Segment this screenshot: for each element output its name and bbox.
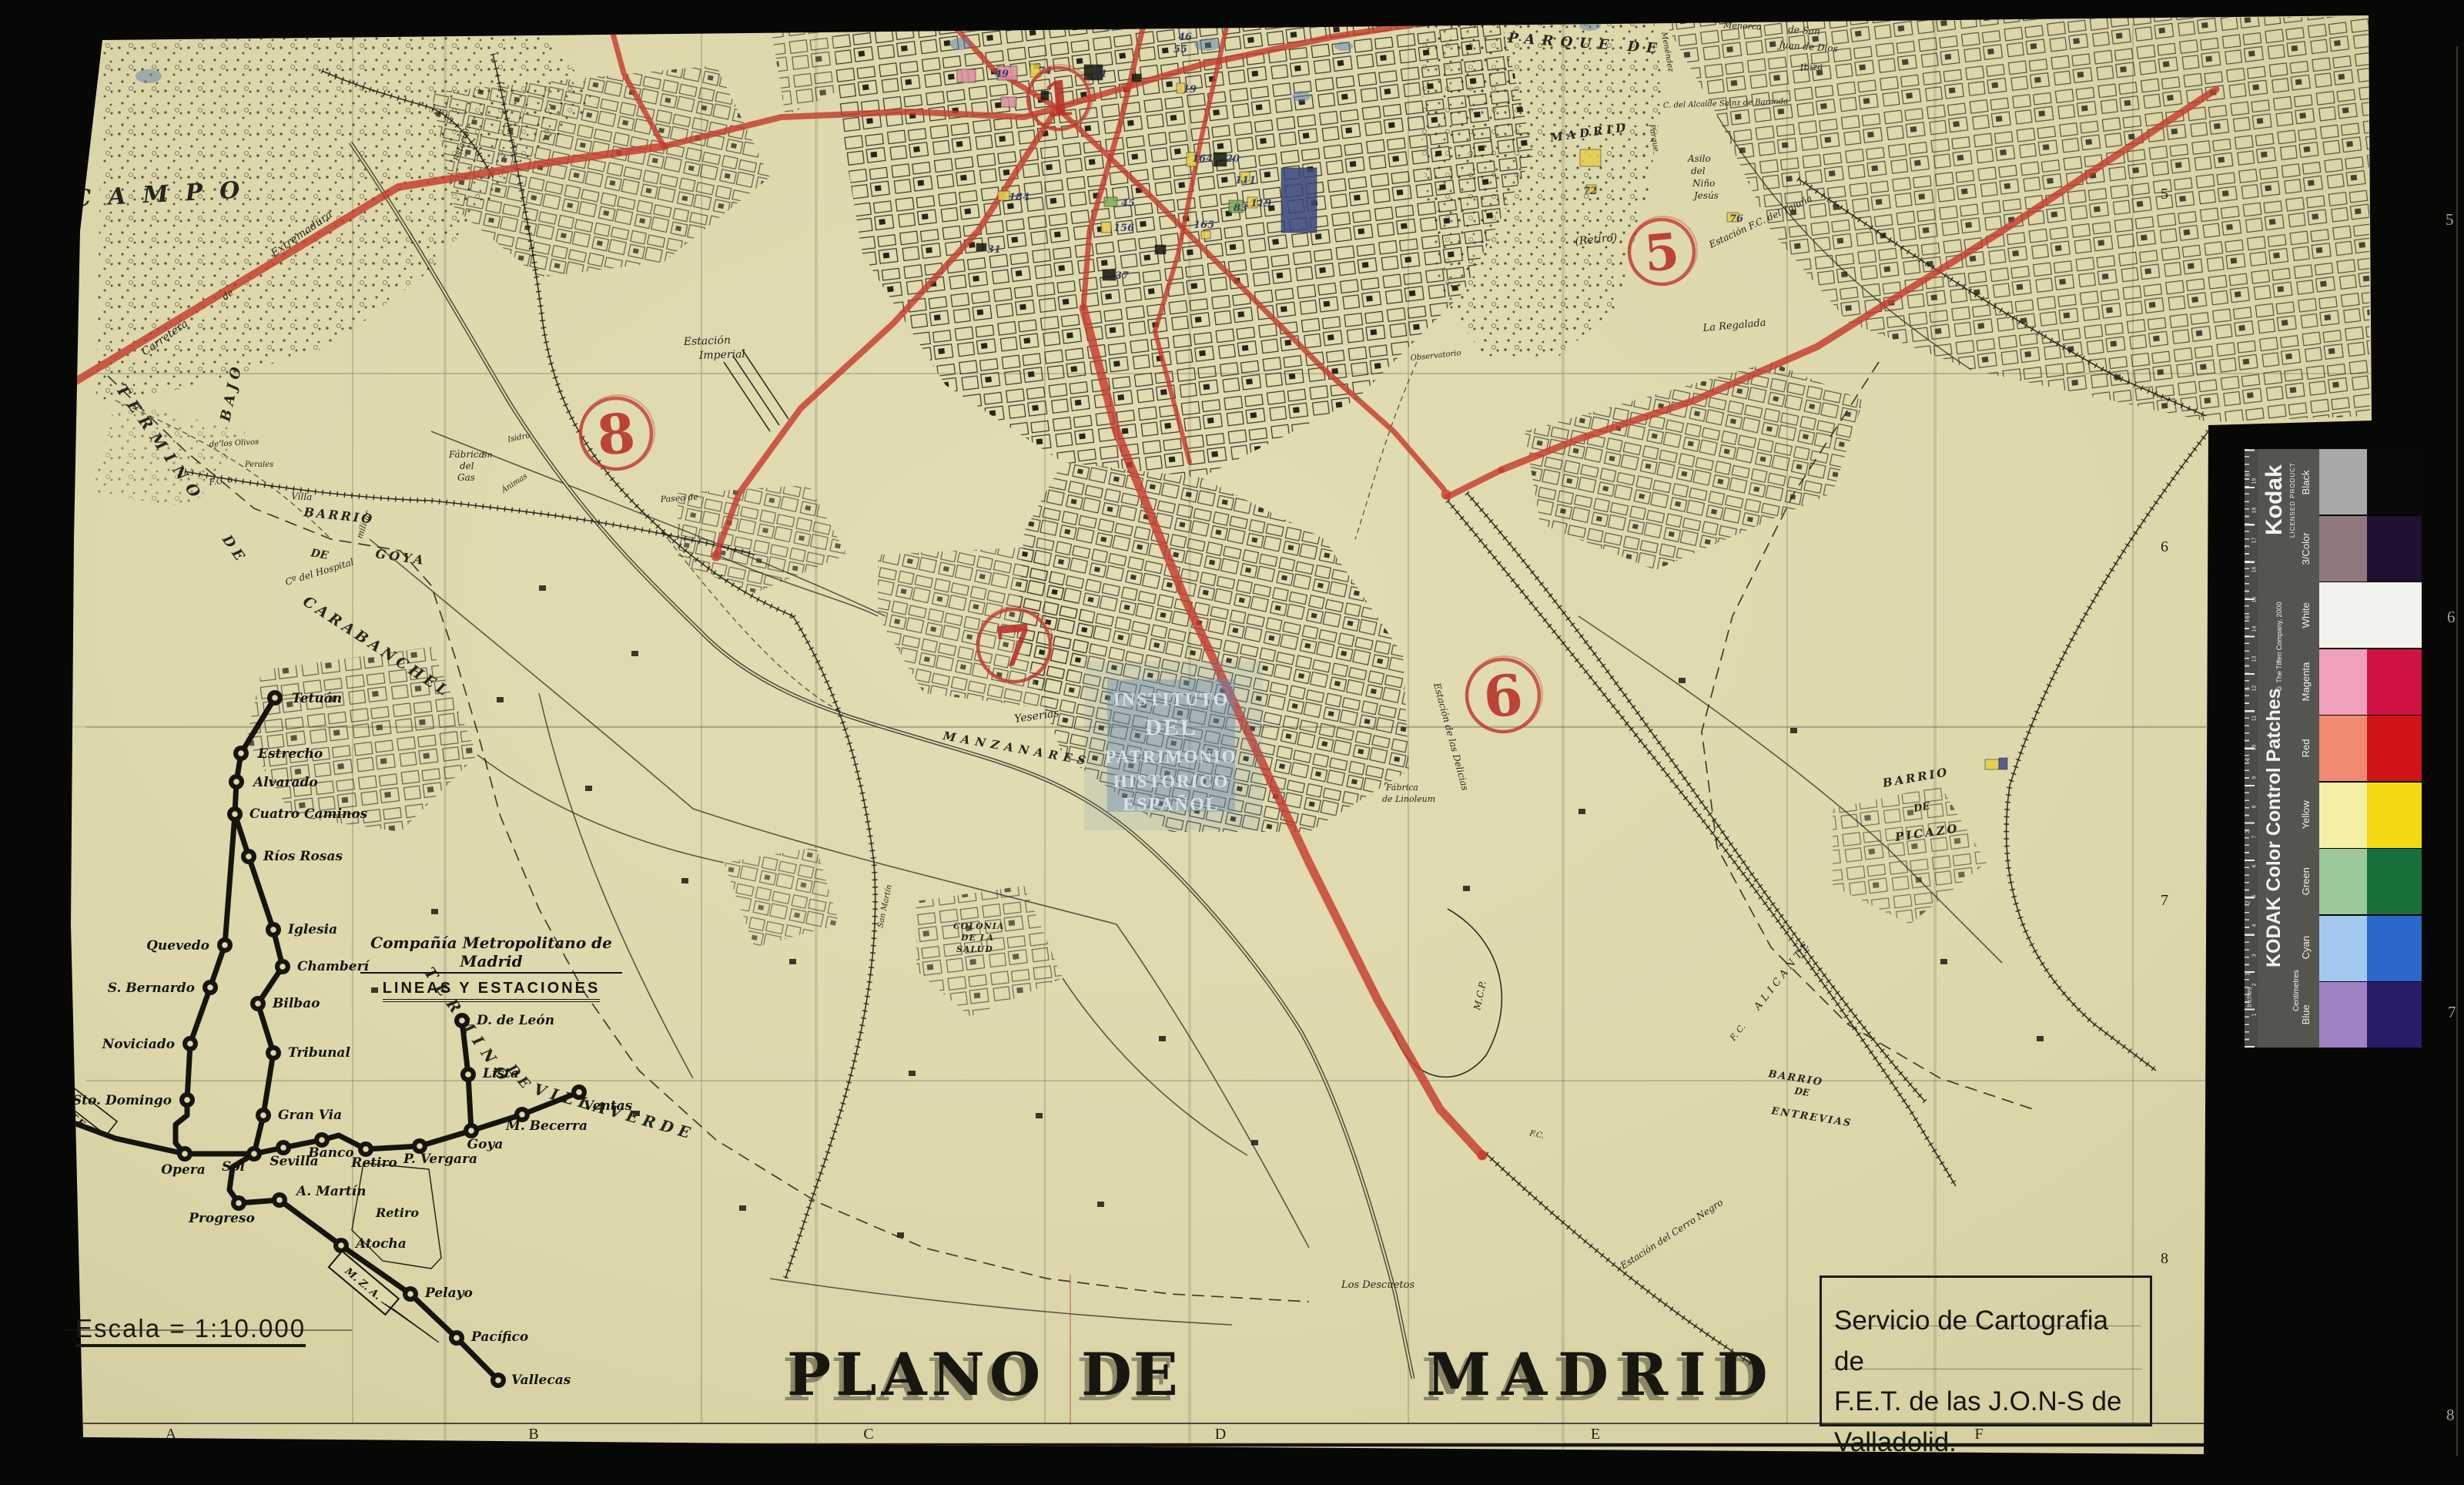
- kodak-row-black: [2319, 449, 2422, 515]
- map-label: Fábrica: [1385, 783, 1418, 793]
- metro-station-label: Pelayo: [424, 1286, 473, 1301]
- red-road-end: [1441, 490, 1451, 500]
- metro-station-hole: [233, 779, 239, 785]
- edge-row-number: 7: [2448, 1003, 2456, 1021]
- metro-station-label: Progreso: [188, 1211, 255, 1226]
- small-building: [539, 585, 546, 591]
- edge-row-number: 8: [2446, 1406, 2455, 1424]
- metro-station-hole: [319, 1137, 325, 1143]
- metro-station-label: Noviciado: [102, 1037, 175, 1052]
- ruler-cm-number: 16: [2252, 565, 2258, 575]
- red-circle-number: 5: [1642, 223, 1682, 284]
- ruler-cm-number: 14: [2252, 625, 2258, 634]
- kodak-patch-light: [2319, 849, 2367, 914]
- metro-station-hole: [270, 927, 276, 933]
- small-building: [631, 651, 638, 656]
- map-label: del: [460, 461, 474, 471]
- building-number: 55: [1173, 44, 1187, 55]
- metro-station-label: Lista: [482, 1066, 519, 1081]
- small-building: [1679, 678, 1686, 683]
- map-label: Jesús: [1692, 190, 1719, 201]
- grid-row-number: 7: [2161, 892, 2168, 909]
- metro-station-label: Norte: [26, 1130, 69, 1145]
- highlighted-building: [1281, 168, 1317, 233]
- map-label: Menorca: [1722, 20, 1762, 32]
- highlighted-building: [1155, 245, 1166, 254]
- ruler-cm-number: 19: [2252, 476, 2258, 485]
- metro-station-hole: [270, 1050, 276, 1056]
- metro-station-label: Alvarado: [252, 775, 318, 790]
- metro-station-label: Ventas: [584, 1098, 633, 1114]
- metro-station-hole: [454, 1335, 460, 1341]
- map-label: SALUD: [956, 944, 993, 954]
- map-label: Imperial: [698, 348, 746, 362]
- ruler-inch-number: 2: [2245, 898, 2251, 907]
- ruler-inch-number: 7: [2245, 541, 2251, 551]
- kodak-patch-light: [2319, 783, 2367, 848]
- kodak-patch-dark: [2367, 716, 2422, 781]
- kodak-patch-label: Magenta: [2300, 649, 2318, 715]
- building-number: 111: [1235, 175, 1256, 186]
- cartography-attribution-box: Servicio de Cartografia de F.E.T. de las…: [1820, 1275, 2152, 1426]
- metro-station-label: Sol: [222, 1159, 246, 1175]
- building-number: 156: [1113, 223, 1134, 234]
- metro-station-hole: [338, 1242, 344, 1249]
- kodak-patch-dark: [2367, 783, 2422, 848]
- kodak-row-cyan: [2319, 916, 2422, 981]
- red-circle-number: 7: [992, 612, 1036, 681]
- building-number: 49: [995, 69, 1009, 80]
- red-road-end: [1478, 1151, 1488, 1161]
- map-title-word-de: DE: [1081, 1340, 1180, 1409]
- edge-row-number: 6: [2447, 608, 2456, 626]
- grid-column-letter: A: [166, 1426, 177, 1443]
- kodak-patch-dark: [2367, 849, 2422, 914]
- highlighted-building: [957, 69, 976, 82]
- map-label: Fábrica: [448, 449, 484, 460]
- metro-station-hole: [468, 1128, 474, 1134]
- metro-station-hole: [251, 1151, 257, 1157]
- small-building: [1940, 959, 1947, 964]
- highlighted-building: [1101, 222, 1111, 233]
- metro-station-hole: [65, 1118, 71, 1124]
- ruler-cm-number: 13: [2252, 654, 2258, 663]
- ruler-inch-number: 4: [2245, 756, 2251, 765]
- small-building: [1036, 1113, 1043, 1118]
- map-title-word-madrid: MADRID: [1426, 1340, 1779, 1409]
- metro-station-hole: [363, 1146, 369, 1152]
- highlighted-building: [1214, 153, 1227, 166]
- metro-station-label: Iglesia: [287, 922, 337, 937]
- ruler-cm-number: 6: [2252, 862, 2258, 871]
- metro-station-hole: [238, 750, 244, 756]
- stamp-line: INSTITUTO: [1113, 690, 1230, 710]
- kodak-patch-label: White: [2300, 582, 2318, 649]
- map-label: COLONIA: [953, 921, 1004, 931]
- metro-company-label: Compañía Metropolitano de Madrid: [360, 934, 622, 974]
- kodak-patch-light: [2319, 982, 2367, 1048]
- metro-station-label: Retiro: [350, 1155, 397, 1171]
- metro-station-label: Quevedo: [146, 938, 209, 954]
- blue-wash: [949, 38, 971, 50]
- kodak-patch-light: [2319, 916, 2367, 981]
- highlighted-building: [1201, 231, 1210, 239]
- small-building: [585, 786, 592, 791]
- grid-column-letter: B: [528, 1426, 538, 1443]
- metro-station-label: Pacífico: [470, 1329, 528, 1345]
- edge-row-number: 5: [2446, 210, 2454, 229]
- map-label: Ibiza: [1799, 61, 1823, 73]
- metro-station-hole: [232, 811, 238, 817]
- ruler-cm-number: 10: [2252, 743, 2258, 753]
- map-label: Los Descuetos: [1341, 1279, 1414, 1291]
- kodak-row-white: [2319, 582, 2422, 648]
- building-number: 37: [1115, 270, 1129, 282]
- highlighted-building: [1999, 758, 2007, 769]
- blue-wash: [1100, 22, 1117, 31]
- blue-wash: [1334, 42, 1353, 51]
- map-label: de Linoleum: [1382, 794, 1435, 804]
- kodak-patch-label: 3/Color: [2300, 515, 2318, 582]
- metro-station-hole: [465, 1071, 471, 1078]
- metro-station-label: D. de León: [476, 1013, 554, 1028]
- red-road-end: [711, 551, 721, 561]
- building-number: 19: [1183, 84, 1197, 96]
- metro-station-hole: [182, 1151, 188, 1157]
- map-label: de San: [1788, 24, 1821, 37]
- grid-column-letter: C: [863, 1426, 873, 1443]
- kodak-patch-light: [2319, 716, 2367, 781]
- kodak-patch-label: Yellow: [2300, 782, 2318, 848]
- grid-column-letter: E: [1591, 1426, 1600, 1443]
- metro-station-label: Tetuán: [292, 691, 342, 706]
- kodak-inches-label: Inches: [2245, 954, 2253, 1041]
- metro-station-hole: [495, 1377, 501, 1383]
- ruler-cm-number: 5: [2252, 891, 2258, 900]
- metro-station-hole: [276, 1197, 283, 1203]
- metro-station-label: Gran Via: [278, 1108, 342, 1123]
- blue-wash: [136, 69, 162, 83]
- kodak-patch-dark: [2367, 649, 2422, 715]
- kodak-row-blue: [2319, 982, 2422, 1048]
- metro-legend-heading: Compañía Metropolitano de Madrid LINEAS …: [360, 934, 622, 1002]
- building-number: 164: [1192, 153, 1213, 165]
- metro-station-hole: [576, 1089, 582, 1095]
- metro-station-hole: [459, 1017, 465, 1024]
- metro-station-label: Atocha: [354, 1236, 407, 1252]
- kodak-row-magenta: [2319, 649, 2422, 715]
- metro-station-label: Goya: [467, 1137, 504, 1152]
- metro-station-hole: [407, 1291, 413, 1297]
- scale-text: Escala = 1:10.000: [75, 1314, 306, 1347]
- kodak-patch-dark: [2367, 916, 2422, 981]
- kodak-patch-label: Cyan: [2300, 914, 2318, 981]
- small-building: [739, 1205, 746, 1211]
- kodak-patch-label: Green: [2300, 848, 2318, 914]
- building-number: 184: [1009, 192, 1029, 203]
- ruler-cm-number: 9: [2252, 773, 2258, 782]
- archive-stamp: INSTITUTO DEL PATRIMONIO HISTORICO ESPAÑ…: [1084, 661, 1263, 830]
- ruler-inch-number: 3: [2245, 826, 2251, 836]
- metro-station-hole: [417, 1143, 423, 1149]
- metro-station-hole: [519, 1111, 525, 1118]
- metro-station-label: S. Bernardo: [108, 981, 195, 996]
- metro-station-hole: [272, 695, 278, 701]
- grid-row-number: 5: [2161, 186, 2168, 203]
- metro-station-label: Ríos Rosas: [263, 849, 343, 864]
- map-label: Perales: [244, 461, 273, 469]
- grid-column-letter: D: [1215, 1426, 1226, 1443]
- highlighted-building: [1580, 149, 1601, 166]
- highlighted-building: [998, 191, 1009, 200]
- building-number: 76: [1729, 213, 1743, 225]
- map-label: del: [1691, 166, 1706, 176]
- small-building: [2037, 1036, 2044, 1041]
- stamp-line: DEL: [1145, 715, 1197, 740]
- scale-label: Escala = 1:10.000: [75, 1314, 306, 1343]
- red-circle-number: 1: [1039, 70, 1077, 129]
- metro-station-label: M. Becerra: [505, 1118, 588, 1134]
- building-number: 46: [1178, 32, 1192, 43]
- small-building: [1097, 1202, 1104, 1207]
- kodak-patch-dark: [2367, 516, 2422, 582]
- metro-station-label: Estrecho: [257, 746, 323, 762]
- building-number: 21: [1093, 69, 1107, 80]
- kodak-patch-label: Blue: [2300, 981, 2318, 1048]
- ruler-cm-number: 8: [2252, 803, 2258, 812]
- ruler-cm-number: 15: [2252, 595, 2258, 604]
- stamp-line: ESPAÑOL: [1123, 795, 1220, 815]
- metro-station-label: Vallecas: [511, 1373, 571, 1388]
- blue-wash: [1194, 39, 1220, 51]
- kodak-patch-label: Black: [2300, 449, 2318, 515]
- map-label: Villa: [291, 491, 313, 502]
- highlighted-building: [1001, 97, 1016, 107]
- kodak-strip-title: KODAK Color Control Patches: [2263, 625, 2285, 1031]
- map-label: Asilo: [1687, 153, 1711, 164]
- kodak-licensed-label: LICENSED PRODUCT: [2289, 457, 2296, 543]
- kodak-patch-light: [2319, 449, 2367, 515]
- map-canvas: CAMPOTERMINODECARABANCHELBAJOBARRIODEGOY…: [0, 0, 2464, 1485]
- metro-station-hole: [222, 942, 228, 948]
- map-label: Gas: [457, 472, 475, 483]
- small-building: [1251, 1140, 1258, 1145]
- metro-station-hole: [246, 853, 252, 860]
- map-title-word-plano: PLANO: [787, 1340, 1045, 1409]
- small-building: [1578, 809, 1585, 814]
- attribution-line1: Servicio de Cartografia de: [1834, 1301, 2142, 1382]
- kodak-patch: [2319, 582, 2422, 648]
- red-circle-number: 6: [1481, 662, 1525, 731]
- ruler-inch-number: 5: [2245, 684, 2251, 693]
- metro-station-label: Opera: [161, 1162, 205, 1178]
- kodak-patches: [2319, 449, 2422, 1048]
- metro-station-label: Banco: [307, 1145, 353, 1161]
- kodak-brand-label: Kodak: [2261, 452, 2288, 548]
- building-number: 119: [1250, 198, 1271, 210]
- metro-station-label: P. Vergara: [403, 1151, 477, 1167]
- small-building: [497, 697, 504, 702]
- metro-station-hole: [207, 984, 213, 991]
- kodak-row-green: [2319, 849, 2422, 914]
- metro-station-hole: [255, 1001, 261, 1007]
- scanned-map-plano-de-madrid: CAMPOTERMINODECARABANCHELBAJOBARRIODEGOY…: [0, 0, 2464, 1485]
- small-building: [1463, 886, 1470, 891]
- ruler-cm-number: 11: [2252, 713, 2258, 722]
- metro-station-label: A. Martín: [295, 1184, 367, 1199]
- kodak-patch-light: [2319, 516, 2367, 582]
- building-number: 31: [987, 244, 1001, 256]
- map-label: Estación: [683, 334, 731, 348]
- ruler-inch-number: 6: [2245, 613, 2251, 622]
- highlighted-building: [1103, 270, 1116, 280]
- building-number: 20: [1225, 153, 1240, 165]
- blue-wash: [1292, 91, 1311, 102]
- ruler-cm-number: 17: [2252, 535, 2258, 545]
- small-building: [909, 1071, 916, 1076]
- small-building: [1159, 1036, 1166, 1041]
- building-number: 45: [1121, 198, 1135, 210]
- small-building: [789, 959, 796, 964]
- metro-station-label: Cuatro Caminos: [249, 806, 368, 822]
- ruler-inch-number: 8: [2245, 471, 2251, 480]
- metro-station-label: Sto. Domingo: [72, 1093, 172, 1108]
- kodak-row-red: [2319, 716, 2422, 781]
- metro-station-label: Chamberí: [297, 959, 370, 974]
- small-building: [681, 878, 688, 883]
- metro-station-hole: [236, 1200, 242, 1206]
- ruler-cm-number: 18: [2252, 506, 2258, 515]
- metro-station-dot: [60, 1113, 75, 1128]
- building-number: 83: [1234, 203, 1247, 214]
- stamp-line: HISTORICO: [1113, 772, 1230, 791]
- grid-row-number: 6: [2161, 538, 2168, 555]
- metro-station-hole: [280, 964, 286, 970]
- small-building: [1790, 728, 1797, 733]
- metro-station-hole: [260, 1112, 266, 1118]
- retiro-park-label: Retiro: [375, 1205, 419, 1220]
- metro-station-label: Bilbao: [272, 996, 320, 1011]
- red-circle-number: 8: [594, 401, 638, 468]
- attribution-line2: F.E.T. de las J.O.N-S de Valladolid.: [1834, 1382, 2142, 1463]
- ruler-cm-number: 4: [2252, 921, 2258, 930]
- highlighted-building: [1104, 197, 1117, 206]
- highlighted-building: [976, 243, 986, 251]
- kodak-row-yellow: [2319, 783, 2422, 848]
- scan-edge-marks: 5678: [2446, 210, 2456, 1424]
- map-label: DE LA: [960, 933, 994, 943]
- kodak-patch-light: [2319, 649, 2367, 715]
- blue-wash: [1579, 20, 1601, 31]
- map-label: Niño: [1692, 178, 1715, 189]
- highlighted-building: [1985, 759, 1999, 769]
- small-building: [431, 909, 438, 914]
- ruler-cm-number: 12: [2252, 684, 2258, 693]
- building-number: 72: [1583, 186, 1597, 197]
- stamp-line: PATRIMONIO: [1105, 747, 1237, 766]
- ruler-cm-number: 7: [2252, 832, 2258, 841]
- kodak-row-3-color: [2319, 516, 2422, 582]
- building-number: 165: [1193, 220, 1214, 231]
- metro-station-hole: [187, 1041, 193, 1047]
- metro-station-label: Tribunal: [288, 1045, 350, 1061]
- metro-station-hole: [280, 1145, 286, 1151]
- kodak-patch-dark: [2367, 449, 2422, 515]
- kodak-color-control-strip: 1234567891011121314151617181912345678 Ko…: [2245, 449, 2422, 1048]
- kodak-patch-label: Red: [2300, 715, 2318, 781]
- kodak-patch-dark: [2367, 982, 2422, 1048]
- metro-lines-stations-label: LINEAS Y ESTACIONES: [383, 980, 601, 1002]
- grid-row-number: 8: [2161, 1250, 2168, 1267]
- highlighted-building: [1132, 74, 1141, 82]
- metro-station-hole: [184, 1097, 190, 1103]
